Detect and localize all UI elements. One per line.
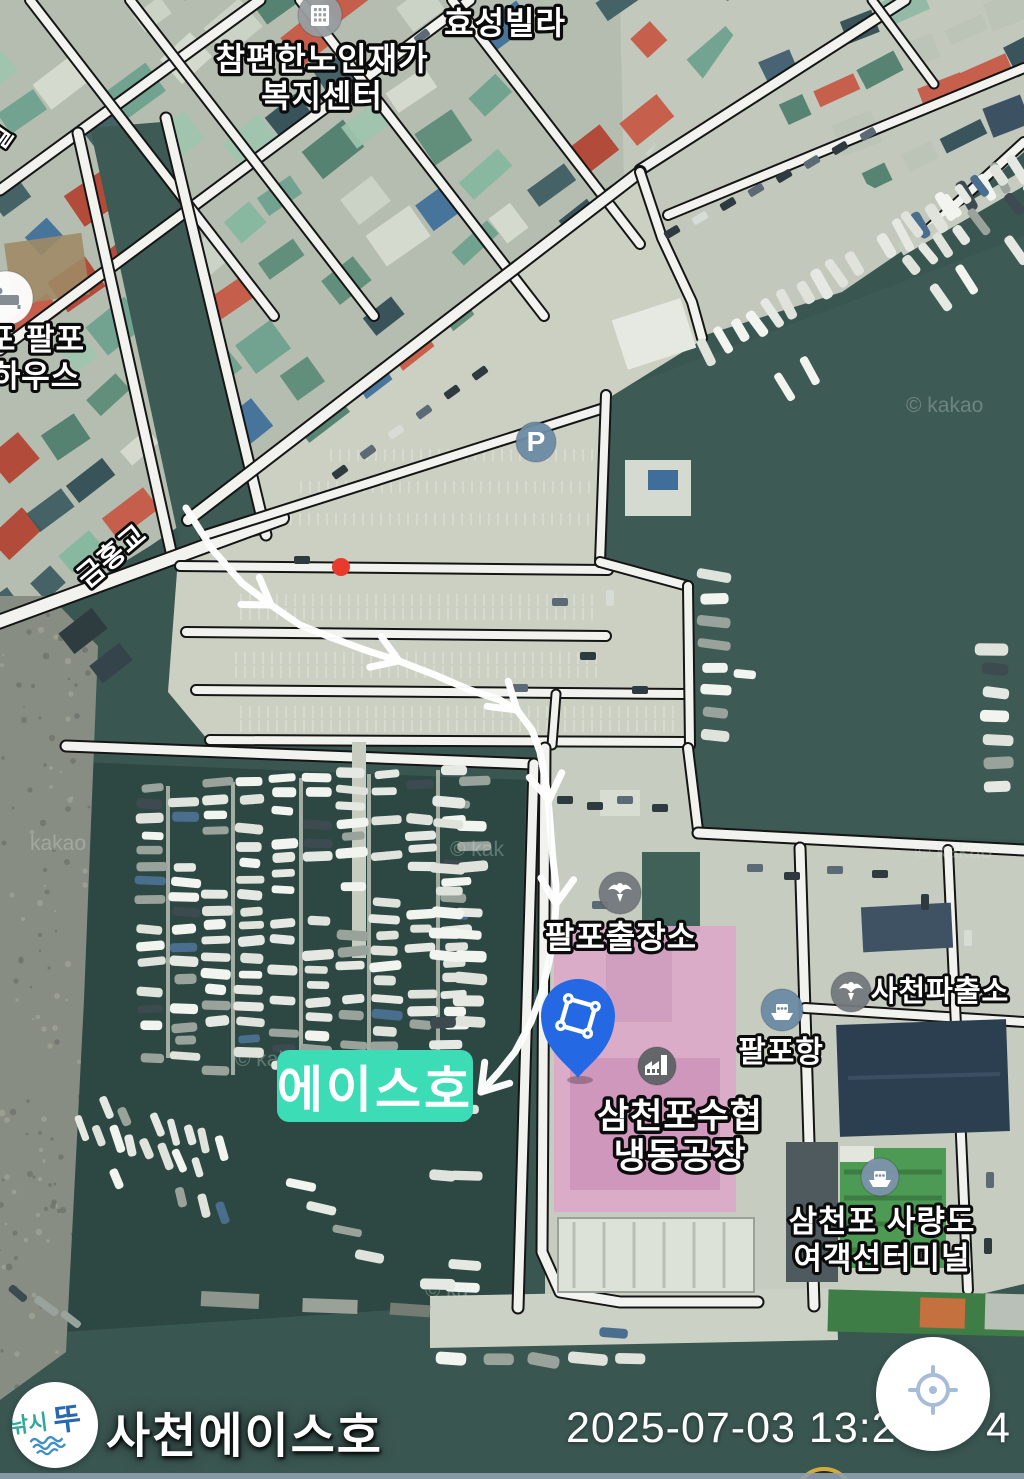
kakao-watermark: © kak <box>450 838 504 861</box>
satellite-map[interactable]: © kakaokakao© kak© kakao© kaka© kaP효성빌라참… <box>0 0 1024 1479</box>
svg-text:팔포항: 팔포항 <box>738 1036 824 1069</box>
label-sacheon-police-box: 사천파출소 <box>871 975 1009 1008</box>
kakao-watermark: © ka <box>425 1279 469 1302</box>
svg-text:P: P <box>527 426 546 457</box>
current-location-button[interactable] <box>876 1337 990 1451</box>
svg-text:참편한노인재가: 참편한노인재가 <box>215 41 428 77</box>
svg-text:여객선터미널: 여객선터미널 <box>793 1241 970 1276</box>
svg-text:효성빌라: 효성빌라 <box>444 5 566 41</box>
target-icon <box>876 1337 990 1451</box>
screen-bottom-strip <box>0 1473 1024 1479</box>
police-icon[interactable] <box>831 972 871 1012</box>
svg-text:복지센터: 복지센터 <box>261 78 383 114</box>
satellite-map-screenshot: © kakaokakao© kak© kakao© kaka© kaP효성빌라참… <box>0 0 1024 1479</box>
fishing-app-logo: 낚시 뚜 <box>12 1382 98 1468</box>
svg-text:삼천포 사량도: 삼천포 사량도 <box>789 1204 976 1239</box>
video-title: 사천에이스호 <box>106 1396 383 1466</box>
svg-text:사천파출소: 사천파출소 <box>871 975 1009 1008</box>
kakao-watermark: © kakao <box>915 840 992 863</box>
port-ship-icon[interactable] <box>761 989 803 1031</box>
timestamp: 2025-07-03 13:2 <box>566 1404 897 1453</box>
label-palpo-port: 팔포항 <box>738 1036 824 1069</box>
svg-text:냉동공장: 냉동공장 <box>614 1137 747 1176</box>
red-dot-marker <box>332 558 350 576</box>
welfare-building-icon[interactable] <box>298 0 342 37</box>
ferry-icon[interactable] <box>861 1158 899 1196</box>
svg-text:포 팔포: 포 팔포 <box>0 322 85 357</box>
parking-icon[interactable]: P <box>516 422 556 462</box>
svg-text:삼천포수협: 삼천포수협 <box>597 1097 763 1136</box>
label-palpo-branch-office: 팔포출장소 <box>545 919 697 955</box>
logo-text-1: 낚시 <box>12 1411 49 1439</box>
svg-text:팔포출장소: 팔포출장소 <box>545 919 697 955</box>
svg-text:하우스: 하우스 <box>0 359 80 394</box>
kakao-watermark: © kakao <box>906 394 983 417</box>
label-freezing-plant: 삼천포수협냉동공장 <box>597 1097 763 1176</box>
ace-ship-highlight-tag: 에이스호 <box>277 1050 473 1122</box>
police-icon[interactable] <box>599 872 641 914</box>
logo-text-2: 뚜 <box>51 1402 82 1438</box>
logo-art: 낚시 뚜 <box>12 1382 98 1468</box>
kakao-watermark: kakao <box>30 832 86 855</box>
factory-icon[interactable] <box>638 1047 676 1085</box>
label-hyoseong-villa: 효성빌라 <box>444 5 566 41</box>
